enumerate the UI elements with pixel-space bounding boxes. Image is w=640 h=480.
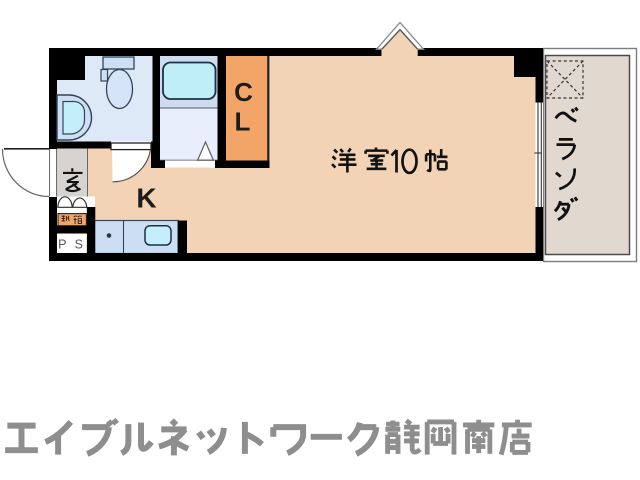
svg-text:P S: P S [58,237,85,251]
svg-text:L: L [235,107,251,137]
svg-text:K: K [136,183,156,214]
svg-text:C: C [234,77,253,107]
